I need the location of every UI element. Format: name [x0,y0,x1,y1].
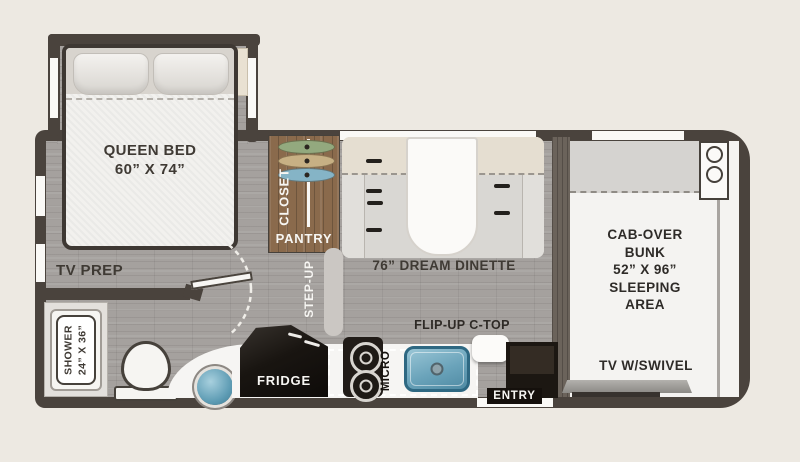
pillow [153,53,229,95]
seat-tuft [494,184,510,188]
pillow [73,53,149,95]
tv-prep-label: TV PREP [56,262,123,281]
seat-tuft [367,201,383,205]
vent-circle-icon [706,166,723,183]
step-up-platform [324,248,343,336]
hanger-icon [278,140,335,154]
queen-bed: QUEEN BED 60” X 74” [62,44,238,250]
entry-step-face [510,346,554,374]
bathroom-wall [42,288,190,300]
bed-sheet-line [66,98,234,100]
bunk-vent-panel [699,141,729,200]
closet-pantry-cabinet: CLOSET PANTRY [268,135,340,253]
step-up-label: STEP-UP [302,260,316,318]
micro-label: MICRO [379,351,393,391]
shower-label: SHOWER 24” X 36” [62,325,89,375]
seat-tuft [494,211,510,215]
seat-tuft [366,189,382,193]
window-above-bunk [592,131,684,140]
window-rear-1 [36,176,45,216]
dream-dinette [342,137,544,258]
fridge-highlight [304,340,320,347]
tv-swivel-base [572,392,660,397]
dinette-label: 76” DREAM DINETTE [344,258,544,275]
kitchen-sink [404,346,470,392]
vent-circle-icon [706,146,723,163]
toilet [121,341,171,391]
floorplan-canvas: { "colors": { "background": "#EDE9E2", "… [0,0,800,462]
bunk-label: CAB-OVER BUNK 52” X 96” SLEEPING AREA [570,226,720,314]
window-slideout-left [50,58,58,118]
flip-up-counter-leaf [472,335,509,362]
entry-label: ENTRY [487,388,542,404]
seat-tuft [366,159,382,163]
pantry-label: PANTRY [269,231,339,246]
window-slideout-right [248,58,256,118]
fridge-label: FRIDGE [240,373,328,388]
bunk-head-band [570,141,700,193]
queen-bed-label: QUEEN BED 60” X 74” [66,142,234,180]
fridge-highlight [288,332,302,338]
window-rear-2 [36,244,45,282]
dinette-table [406,137,478,256]
seat-tuft [366,228,382,232]
bathroom-sink [197,369,233,405]
flip-up-ctop-label: FLIP-UP C-TOP [404,318,520,334]
closet-label: CLOSET [277,168,292,226]
faucet-icon [431,363,444,376]
shower-label-box: SHOWER 24” X 36” [56,315,96,385]
tv-swivel-label: TV W/SWIVEL [586,358,706,375]
